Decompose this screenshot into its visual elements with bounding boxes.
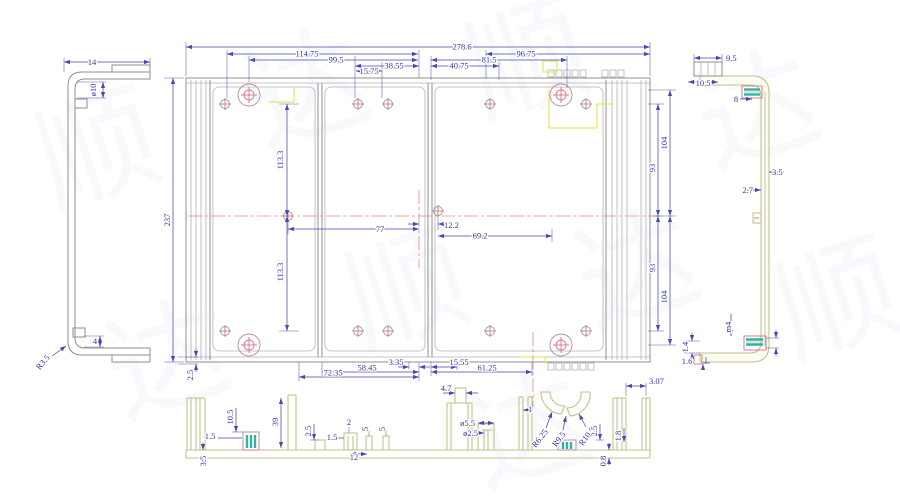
section-boss-left-threaded — [243, 432, 259, 450]
dim-right-view: 1.4 — [680, 341, 690, 352]
dim-section: 3.07 — [649, 376, 664, 386]
cad-drawing-canvas: 顺 达 顺 达 达 顺 达 顺 达 14 ø10 4 R3.5 — [0, 0, 900, 500]
dim-section: 2.5 — [589, 426, 599, 437]
dim-right: 104 — [659, 136, 669, 150]
dim-section: 1.5 — [327, 432, 338, 442]
dim-left: 113.3 — [275, 151, 285, 170]
watermark-glyph: 顺 — [760, 220, 900, 384]
dim-right: 93 — [647, 164, 657, 173]
dim-section: 1 — [528, 404, 532, 414]
dim-right-view: 8 — [734, 94, 738, 104]
dim-top: 99.5 — [329, 55, 344, 65]
dim-section: 4.7 — [441, 383, 452, 393]
dim-right: 93 — [647, 264, 657, 273]
dim-section: 12 — [350, 452, 359, 462]
dim-right-view: 1.6 — [682, 356, 693, 366]
dim-right-view: 9.5 — [726, 53, 737, 63]
dim-right-view-thread: m4 — [723, 321, 733, 333]
dim-right-view: 2.7 — [742, 185, 753, 195]
dim-top: 15.75 — [359, 66, 378, 76]
watermark-glyph: 达 — [560, 190, 715, 354]
dim-right-view: 3.5 — [772, 167, 783, 177]
dim-left-view-width: 14 — [88, 57, 97, 67]
section-rib-39 — [288, 395, 296, 450]
dim-section: 2.5 — [303, 426, 313, 437]
dim-section: 3.5 — [198, 456, 208, 467]
dim-section: ø2.5 — [463, 428, 478, 438]
dim-overall-height: 237 — [162, 214, 172, 227]
dim-section: 2 — [347, 417, 351, 427]
dim-bottom: 58.45 — [357, 363, 376, 373]
dim-section: 5 — [360, 427, 370, 431]
dim-section: 1.5 — [205, 431, 216, 441]
dim-right: 104 — [659, 290, 669, 304]
watermark-glyph: 达 — [680, 30, 835, 194]
dim-section: 0.8 — [598, 456, 608, 467]
section-boss-posts — [344, 433, 389, 450]
dim-right-view: 10.5 — [696, 78, 711, 88]
right-view-notch — [753, 213, 761, 223]
dim-section: 5 — [377, 427, 387, 431]
dim-section: 1.8 — [613, 431, 623, 442]
dim-center: 12.2 — [444, 220, 459, 230]
watermark-glyph: 顺 — [330, 210, 485, 374]
watermark-glyph: 达 — [90, 280, 245, 444]
dim-top: 114.75 — [295, 49, 318, 59]
dim-bottom: 61.25 — [477, 363, 496, 373]
dim-section: 39 — [270, 418, 280, 427]
section-step — [315, 440, 325, 450]
watermark-glyph: 顺 — [450, 0, 605, 143]
dim-left-view-bore: ø10 — [88, 84, 98, 97]
dim-bottom: 72.35 — [323, 368, 342, 378]
dim-overall-width: 278.6 — [452, 42, 471, 52]
dim-bottom: 3.35 — [389, 357, 404, 367]
dim-center: 77 — [376, 224, 385, 234]
dim-top: 96.75 — [516, 49, 535, 59]
dim-top: 38.55 — [384, 61, 403, 71]
dim-section: 10.5 — [225, 410, 235, 425]
dim-top: 40.75 — [449, 61, 468, 71]
dim-top: 81.5 — [482, 55, 497, 65]
dim-left: 2.5 — [185, 370, 195, 381]
dim-left: 113.3 — [275, 263, 285, 282]
dim-left-view-radius: R3.5 — [34, 353, 52, 372]
dim-section: ø5.5 — [460, 418, 475, 428]
dim-center: 69.2 — [473, 231, 488, 241]
dim-bottom: 15.55 — [449, 357, 468, 367]
